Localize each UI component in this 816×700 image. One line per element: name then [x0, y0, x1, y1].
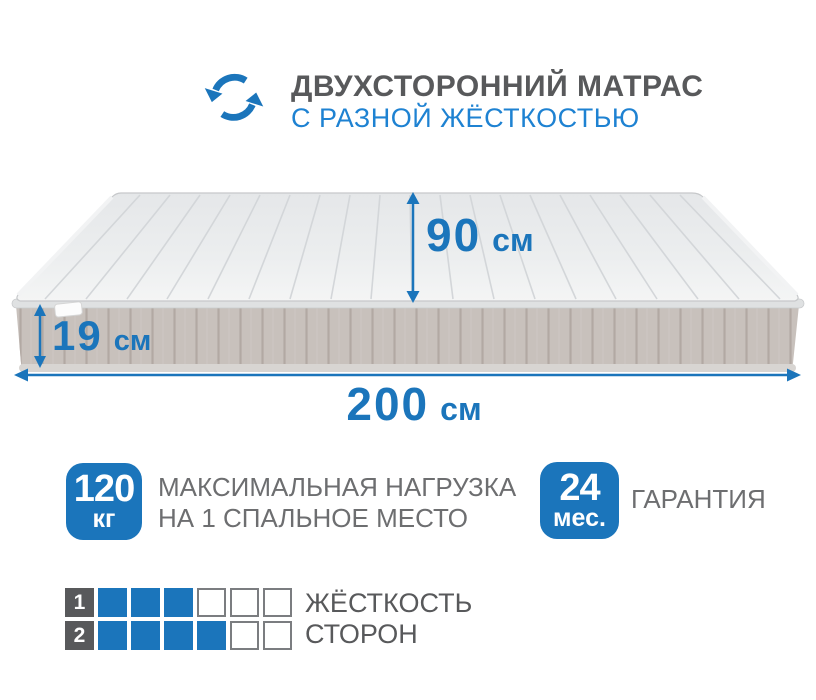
- firmness-side-number: 2: [65, 621, 94, 650]
- two-sided-rotate-icon: [200, 62, 268, 134]
- firmness-cell-filled: [131, 588, 160, 617]
- page-subtitle: С РАЗНОЙ ЖЁСТКОСТЬЮ: [291, 103, 640, 134]
- warranty-badge: 24 мес.: [540, 462, 619, 539]
- max-load-unit: кг: [93, 506, 116, 532]
- firmness-cell-empty: [230, 621, 259, 650]
- firmness-cell-empty: [230, 588, 259, 617]
- firmness-cell-filled: [98, 621, 127, 650]
- firmness-label-line1: ЖЁСТКОСТЬ: [305, 588, 472, 619]
- firmness-cell-filled: [197, 621, 226, 650]
- firmness-cell-filled: [98, 588, 127, 617]
- mattress-bottom-piping: [19, 364, 796, 372]
- warranty-unit: мес.: [553, 505, 606, 531]
- firmness-cell-filled: [131, 621, 160, 650]
- infographic-page: ДВУХСТОРОННИЙ МАТРАС С РАЗНОЙ ЖЁСТКОСТЬЮ: [0, 0, 816, 700]
- max-load-line2: НА 1 СПАЛЬНОЕ МЕСТО: [158, 503, 516, 534]
- firmness-label-line2: СТОРОН: [305, 619, 472, 650]
- firmness-side-number: 1: [65, 588, 94, 617]
- mattress-top-surface: [17, 193, 798, 301]
- max-load-description: МАКСИМАЛЬНАЯ НАГРУЗКА НА 1 СПАЛЬНОЕ МЕСТ…: [158, 472, 516, 534]
- firmness-row: 2: [65, 621, 292, 650]
- thickness-unit: см: [114, 327, 152, 356]
- max-load-line1: МАКСИМАЛЬНАЯ НАГРУЗКА: [158, 472, 516, 503]
- max-load-value: 120: [74, 472, 134, 506]
- max-load-badge: 120 кг: [66, 463, 142, 540]
- warranty-label: ГАРАНТИЯ: [631, 484, 766, 515]
- firmness-cell-empty: [263, 588, 292, 617]
- firmness-label: ЖЁСТКОСТЬ СТОРОН: [305, 588, 472, 650]
- mattress-scene: 90 см 19 см 200 см: [0, 185, 816, 420]
- depth-value: 90: [426, 212, 481, 258]
- width-dimension-label: 200 см: [0, 381, 816, 427]
- firmness-cell-filled: [164, 621, 193, 650]
- firmness-row: 1: [65, 588, 292, 617]
- width-unit: см: [440, 393, 481, 425]
- page-title: ДВУХСТОРОННИЙ МАТРАС: [291, 70, 703, 104]
- thickness-dimension-label: 19 см: [52, 315, 151, 357]
- firmness-cell-filled: [164, 588, 193, 617]
- width-value: 200: [346, 381, 429, 427]
- depth-dimension-label: 90 см: [426, 212, 534, 258]
- depth-unit: см: [492, 224, 533, 256]
- thickness-value: 19: [52, 315, 103, 357]
- firmness-cell-empty: [263, 621, 292, 650]
- warranty-value: 24: [559, 471, 599, 505]
- firmness-cell-empty: [197, 588, 226, 617]
- firmness-rows: 12: [65, 588, 292, 650]
